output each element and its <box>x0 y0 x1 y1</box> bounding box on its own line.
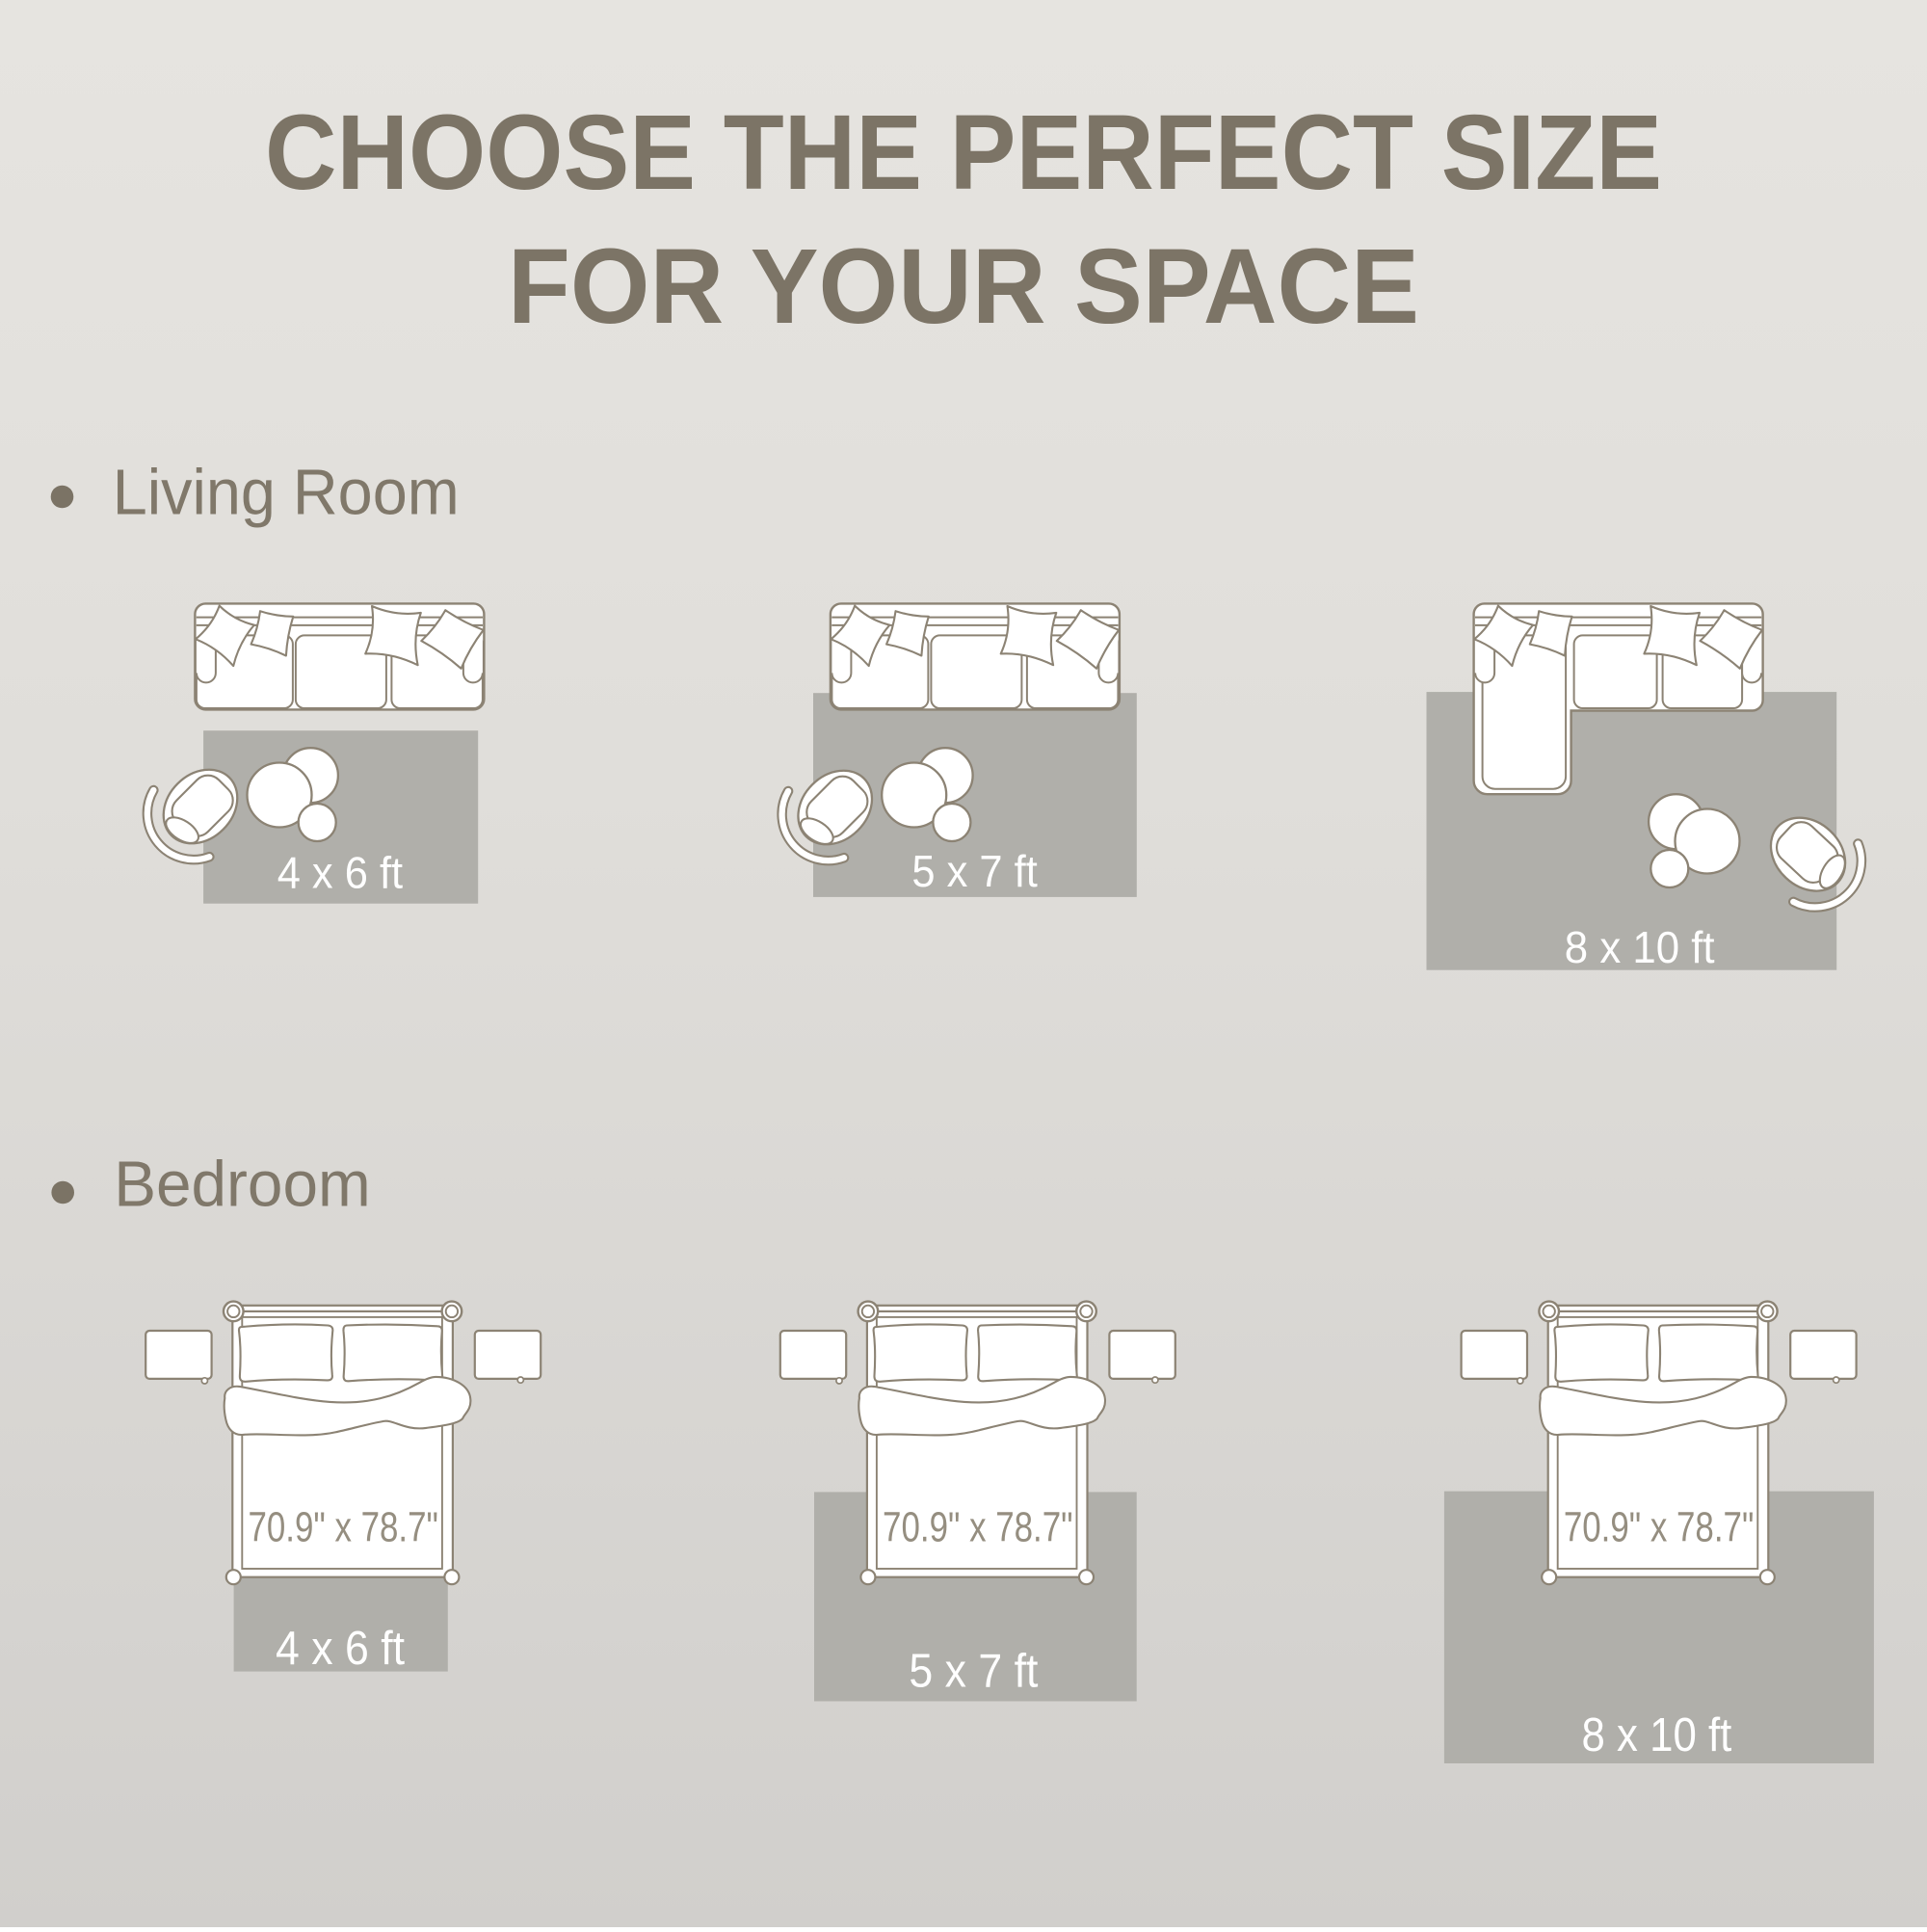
svg-text:70.9" x 78.7": 70.9" x 78.7" <box>1564 1504 1755 1551</box>
svg-text:CHOOSE THE PERFECT SIZE: CHOOSE THE PERFECT SIZE <box>265 93 1662 212</box>
svg-text:70.9" x 78.7": 70.9" x 78.7" <box>883 1504 1073 1551</box>
svg-text:70.9" x 78.7": 70.9" x 78.7" <box>248 1504 438 1551</box>
svg-text:4 x 6 ft: 4 x 6 ft <box>277 848 404 898</box>
svg-text:5 x 7 ft: 5 x 7 ft <box>909 1645 1038 1697</box>
svg-text:Living Room: Living Room <box>113 457 460 529</box>
svg-text:8 x 10 ft: 8 x 10 ft <box>1565 922 1715 972</box>
svg-text:8 x 10 ft: 8 x 10 ft <box>1582 1709 1732 1761</box>
svg-text:5 x 7 ft: 5 x 7 ft <box>911 846 1038 896</box>
svg-text:4 x 6 ft: 4 x 6 ft <box>276 1623 405 1675</box>
svg-text:Bedroom: Bedroom <box>114 1148 371 1220</box>
svg-text:FOR YOUR SPACE: FOR YOUR SPACE <box>508 227 1419 346</box>
